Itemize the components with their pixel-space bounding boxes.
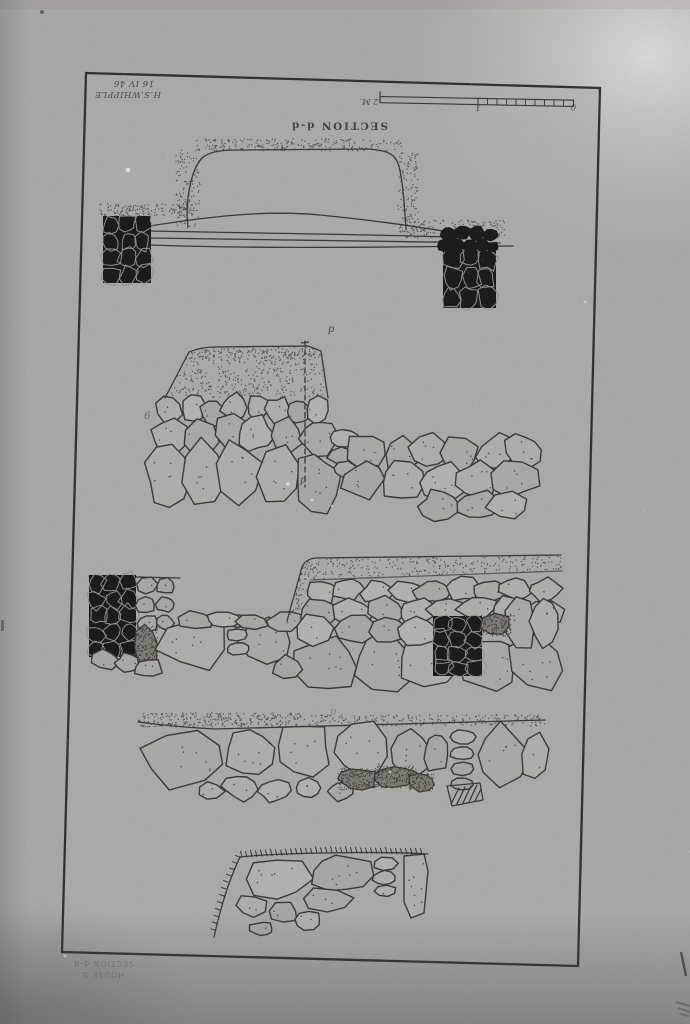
drawing-border-frame <box>62 73 600 966</box>
margin-mark-6: 6 <box>144 411 151 422</box>
signature-author: H.S.WHIPPLE <box>94 89 162 99</box>
vignette-top <box>0 0 690 9</box>
section-letter-top: d <box>328 324 334 335</box>
scanned-photograph: 2 M. 1 0 SECTION d-d H.S.WHIPPLE 16 IV 4… <box>0 0 690 1024</box>
archaeological-section-drawing: 2 M. 1 0 SECTION d-d H.S.WHIPPLE 16 IV 4… <box>0 0 690 1024</box>
signature-date: 16 IV 46 <box>113 78 154 88</box>
section-letter-bottom: d <box>300 475 306 486</box>
vignette-left <box>0 0 28 1024</box>
scale-label-1: 1 <box>475 103 480 112</box>
section-letter-figure4: d <box>330 706 336 717</box>
scale-label-0: 0 <box>571 103 576 112</box>
scale-label-2m: 2 M. <box>360 97 379 106</box>
